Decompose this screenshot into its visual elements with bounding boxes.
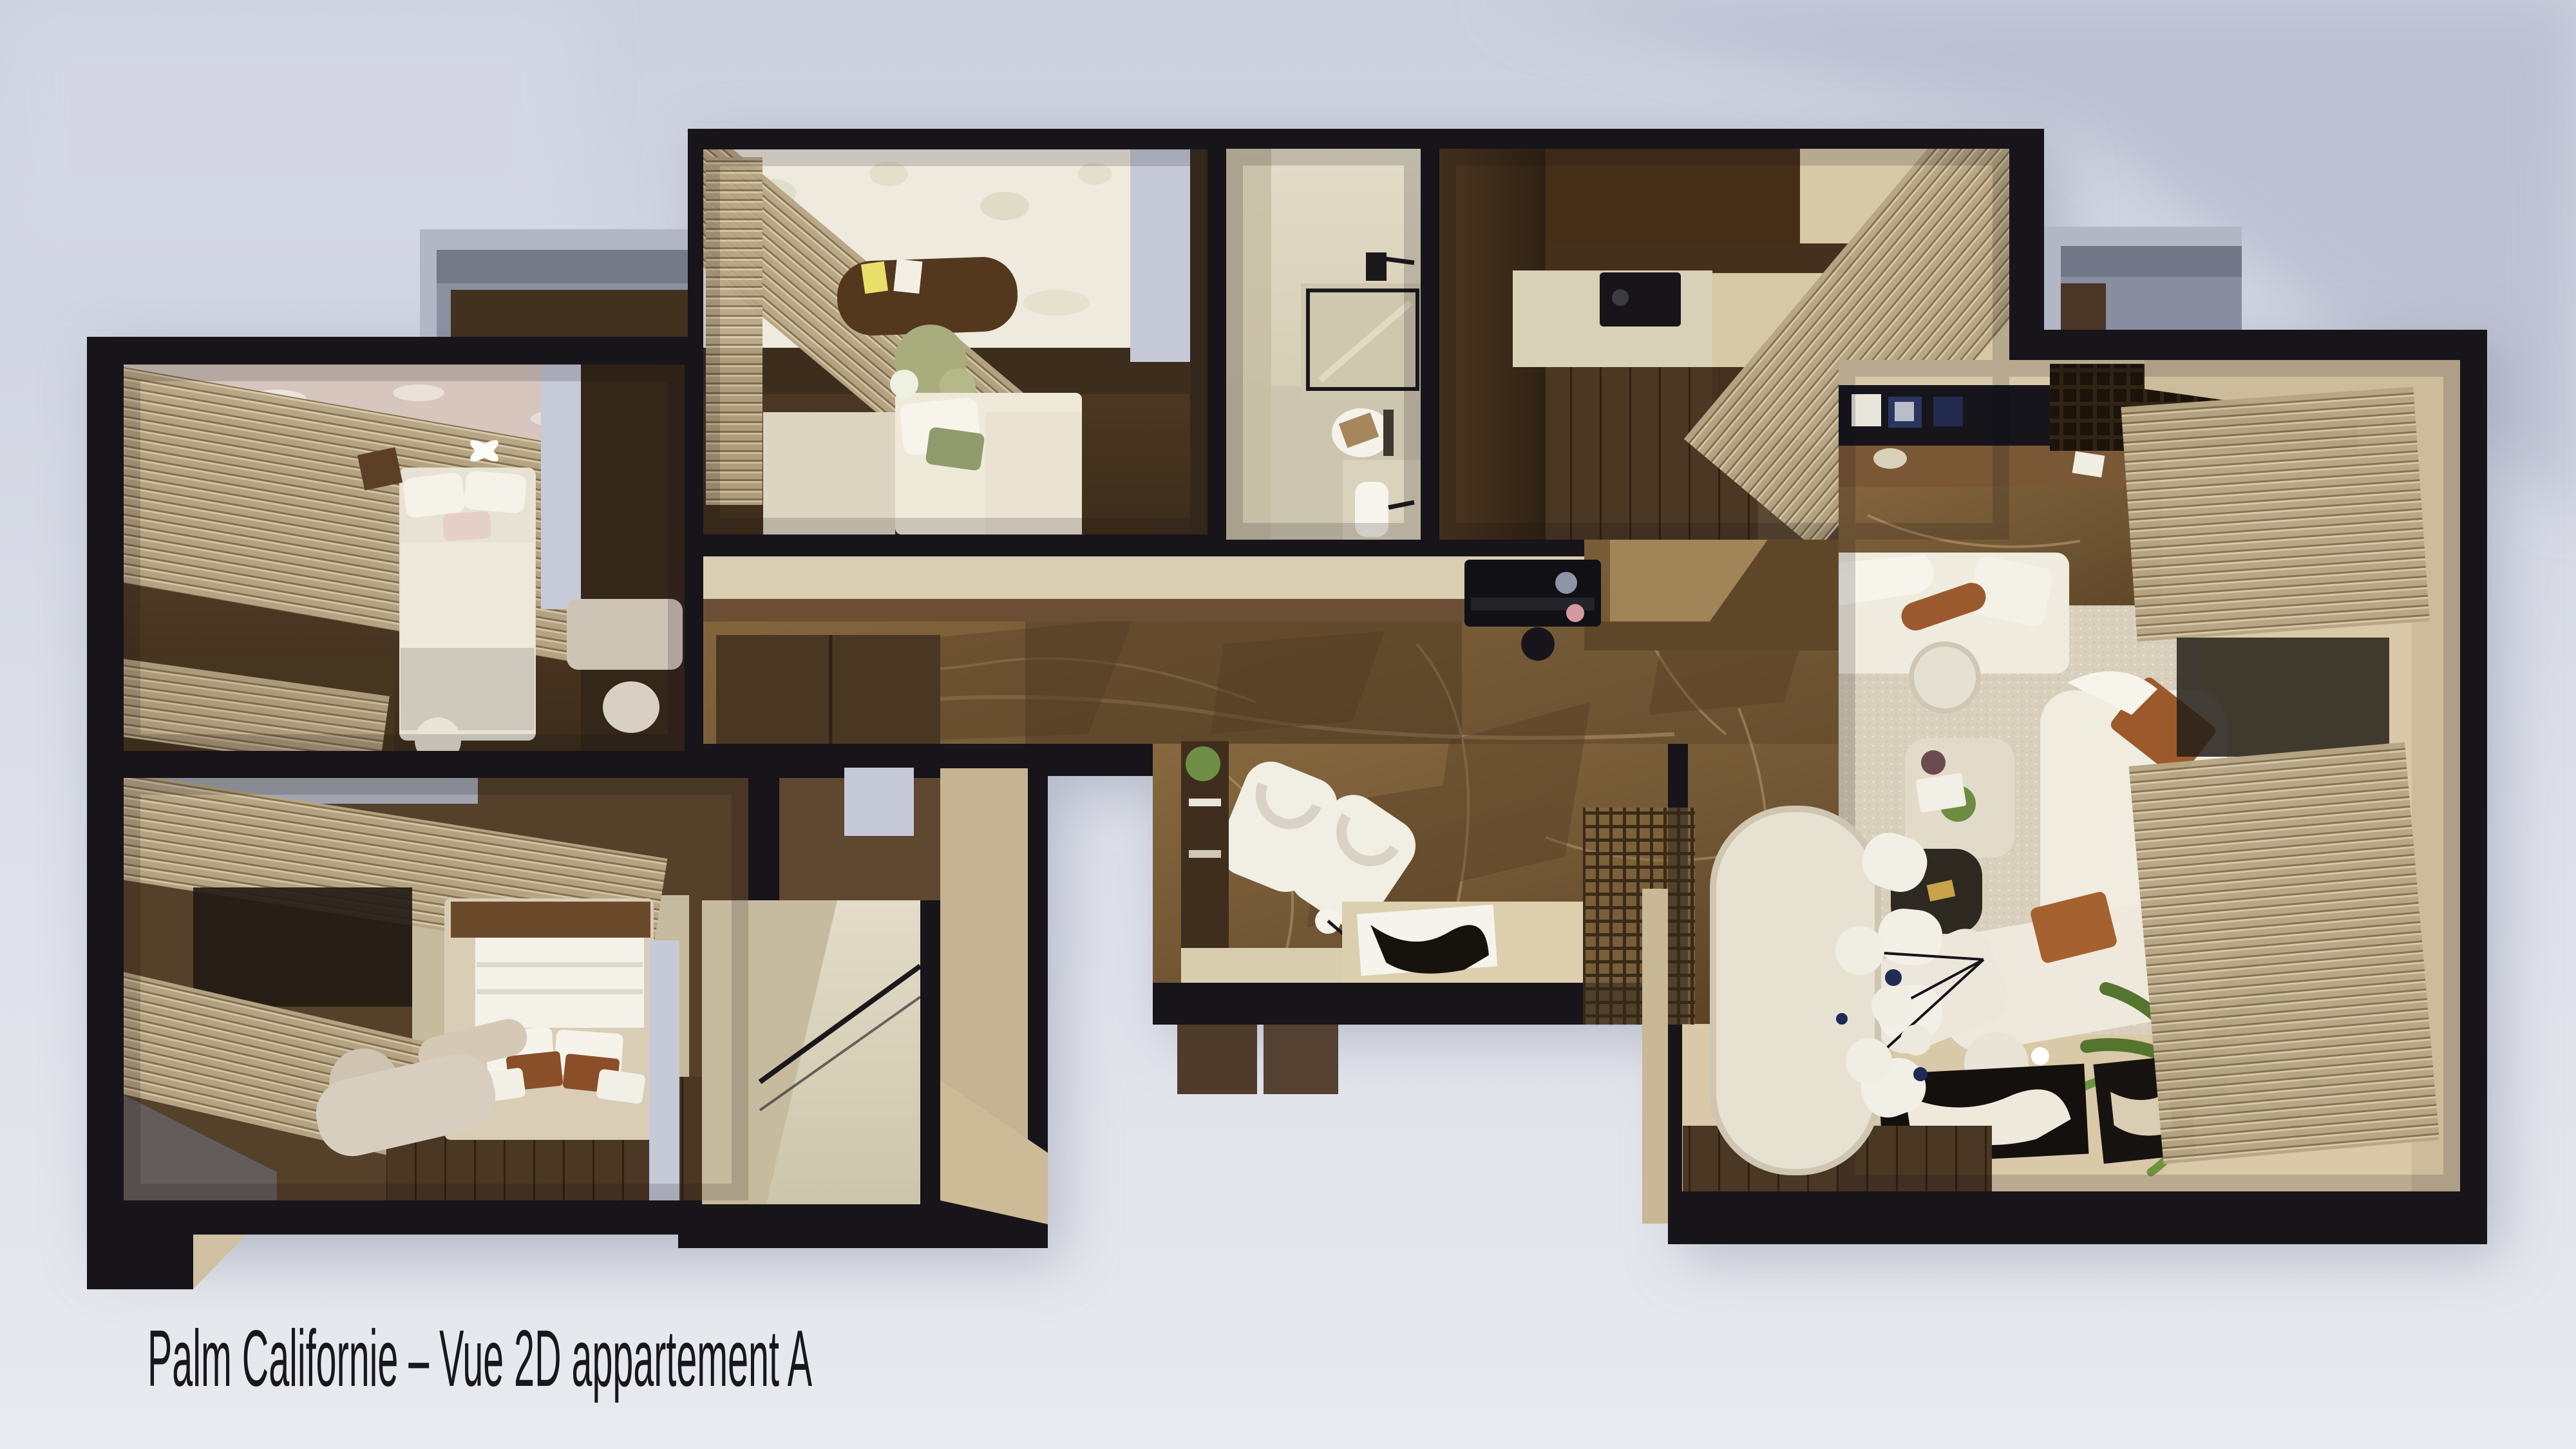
svg-text:Palm Californie – Vue 2D appar: Palm Californie – Vue 2D appartement A	[147, 1314, 812, 1403]
